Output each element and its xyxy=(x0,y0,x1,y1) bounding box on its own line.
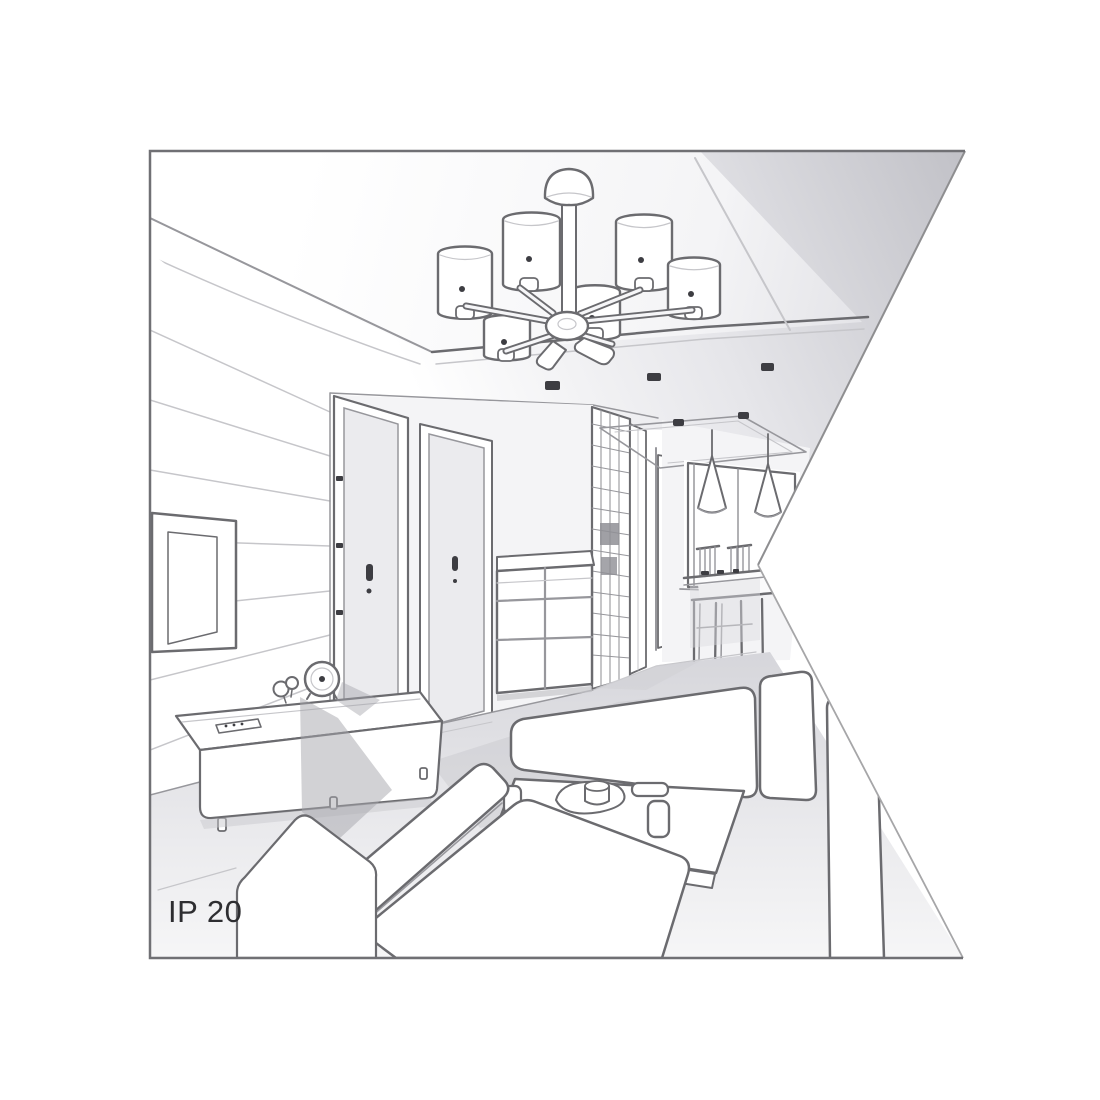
chandelier-hub xyxy=(546,312,588,340)
sofa-armrest xyxy=(760,672,816,800)
ceiling-mount xyxy=(545,169,593,205)
lamp-shade xyxy=(503,213,560,292)
cup xyxy=(648,801,669,837)
door-handle xyxy=(452,556,458,571)
room-sketch: IP 20 xyxy=(0,0,1100,1100)
lamp-shade xyxy=(616,215,672,292)
clock xyxy=(305,662,339,699)
ceiling-spotlight xyxy=(673,419,684,426)
ceiling-spotlight xyxy=(738,412,749,419)
wardrobe-grid xyxy=(592,407,646,689)
sofa-armrest xyxy=(827,694,884,958)
cup-on-plate xyxy=(585,781,609,805)
ip-rating-label: IP 20 xyxy=(168,894,242,929)
door-handle xyxy=(366,564,373,581)
product-illustration-page: IP 20 xyxy=(0,0,1100,1100)
dresser xyxy=(497,551,594,701)
bowl xyxy=(632,783,668,796)
door-right xyxy=(420,424,492,734)
tv-frame xyxy=(152,513,236,652)
chandelier-rod xyxy=(562,196,576,318)
